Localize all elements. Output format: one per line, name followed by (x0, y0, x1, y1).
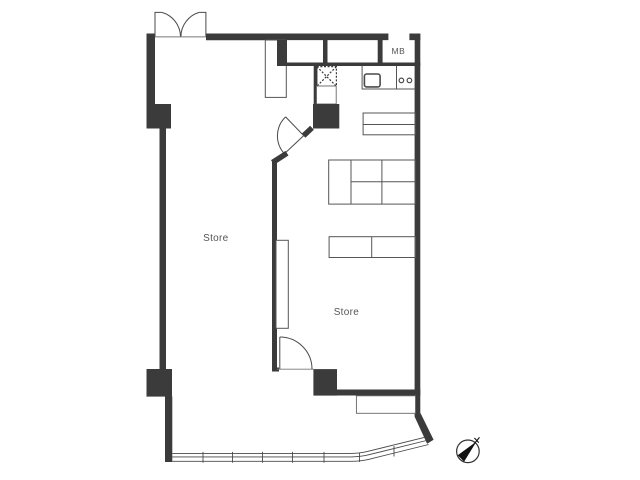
svg-text:Store: Store (203, 233, 229, 244)
svg-text:MB: MB (392, 46, 406, 56)
svg-text:Store: Store (334, 307, 360, 318)
